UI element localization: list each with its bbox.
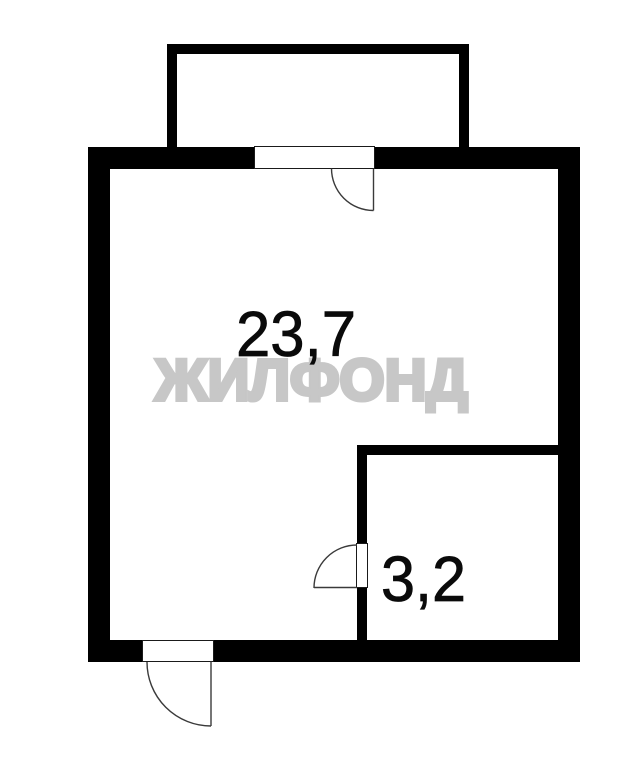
svg-text:3,2: 3,2 bbox=[381, 543, 466, 615]
svg-text:23,7: 23,7 bbox=[236, 298, 356, 370]
